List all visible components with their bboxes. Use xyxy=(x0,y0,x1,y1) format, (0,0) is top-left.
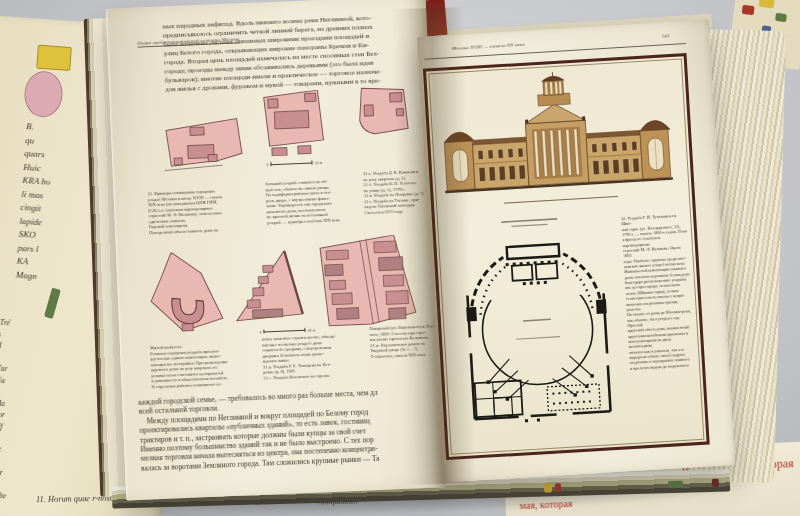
caption-row1-col1: 31. Примеры планировки городских усадеб … xyxy=(148,187,260,236)
plate-frame: 32. Усадьба Т. И. Тутолмина на Шви- вой … xyxy=(423,53,710,460)
jacket-patch-green xyxy=(775,13,787,22)
scale-line xyxy=(270,162,312,165)
page-number: 145 xyxy=(661,33,669,38)
right-page-caption: 32. Усадьба Т. И. Тутолмина на Шви- вой … xyxy=(621,212,696,371)
left-bottom-paragraph: каждой городской семье, — требовалось во… xyxy=(138,385,439,473)
right-running-header: Москва XVIII — начала XX века xyxy=(452,42,525,51)
map-text-upper: B. qu quars Huic KRA bo li mas cingit la… xyxy=(15,120,54,284)
scale-20m-label: 20 м xyxy=(314,160,322,165)
left-top-paragraph: ных парадных анфилад. Вдоль нижнего коле… xyxy=(162,12,419,95)
edge-patch-red xyxy=(555,483,561,492)
edge-patch-yellow xyxy=(544,483,552,492)
caption-row2-col2: новое каменное строительство, объеди- ня… xyxy=(262,332,364,380)
photo-scene: 23 24 25 26 27 28 B. qu quars Huic KRA b… xyxy=(0,0,800,516)
caption-row2-col1: Жилой комплекс. Развитая городская усадь… xyxy=(150,341,258,389)
scale-20m-label: 20 м xyxy=(307,327,315,332)
jacket-patch-red xyxy=(742,5,755,15)
map-color-patch-yellow xyxy=(36,45,72,71)
scale-bar-row2: 0 20 м xyxy=(259,327,315,334)
floor-plan-drawing xyxy=(449,213,623,432)
map-color-patch-green xyxy=(44,288,61,319)
parcel-plan-4 xyxy=(146,250,227,335)
scale-zero-label: 0 xyxy=(266,162,268,167)
parcel-plan-2 xyxy=(261,90,328,157)
caption-row2-col3: Поварской (ул. Воровского) и Хлеб- ного,… xyxy=(369,323,438,359)
caption-row1-col3: 31 а. Усадьба Д. В. Камынина на углу ква… xyxy=(363,168,433,215)
scale-bar-row1: 0 20 м xyxy=(266,160,322,167)
right-page: Москва XVIII — начала XX века 145 xyxy=(417,20,735,483)
map-color-patch-pink xyxy=(23,70,64,119)
scale-line xyxy=(263,330,305,333)
edge-patch-green xyxy=(668,481,683,488)
map-legend-lower: 1. Tré ers Pal ins 2. Tur 3. Na cult 4. … xyxy=(0,316,19,501)
edge-patch-maroon xyxy=(712,479,719,487)
scale-zero-label: 0 xyxy=(259,330,261,335)
parcel-plan-5 xyxy=(232,250,307,327)
jacket-patch-yellow xyxy=(759,0,775,9)
parcel-plan-6 xyxy=(318,234,420,330)
left-page: Очерк градостроительной истории Москвы н… xyxy=(106,0,446,500)
parcel-plan-3 xyxy=(355,84,411,138)
facade-drawing xyxy=(433,65,681,213)
caption-row1-col2: большой усадьбе ставится по об- щей оси,… xyxy=(265,178,359,226)
parcel-plan-1 xyxy=(163,117,247,172)
